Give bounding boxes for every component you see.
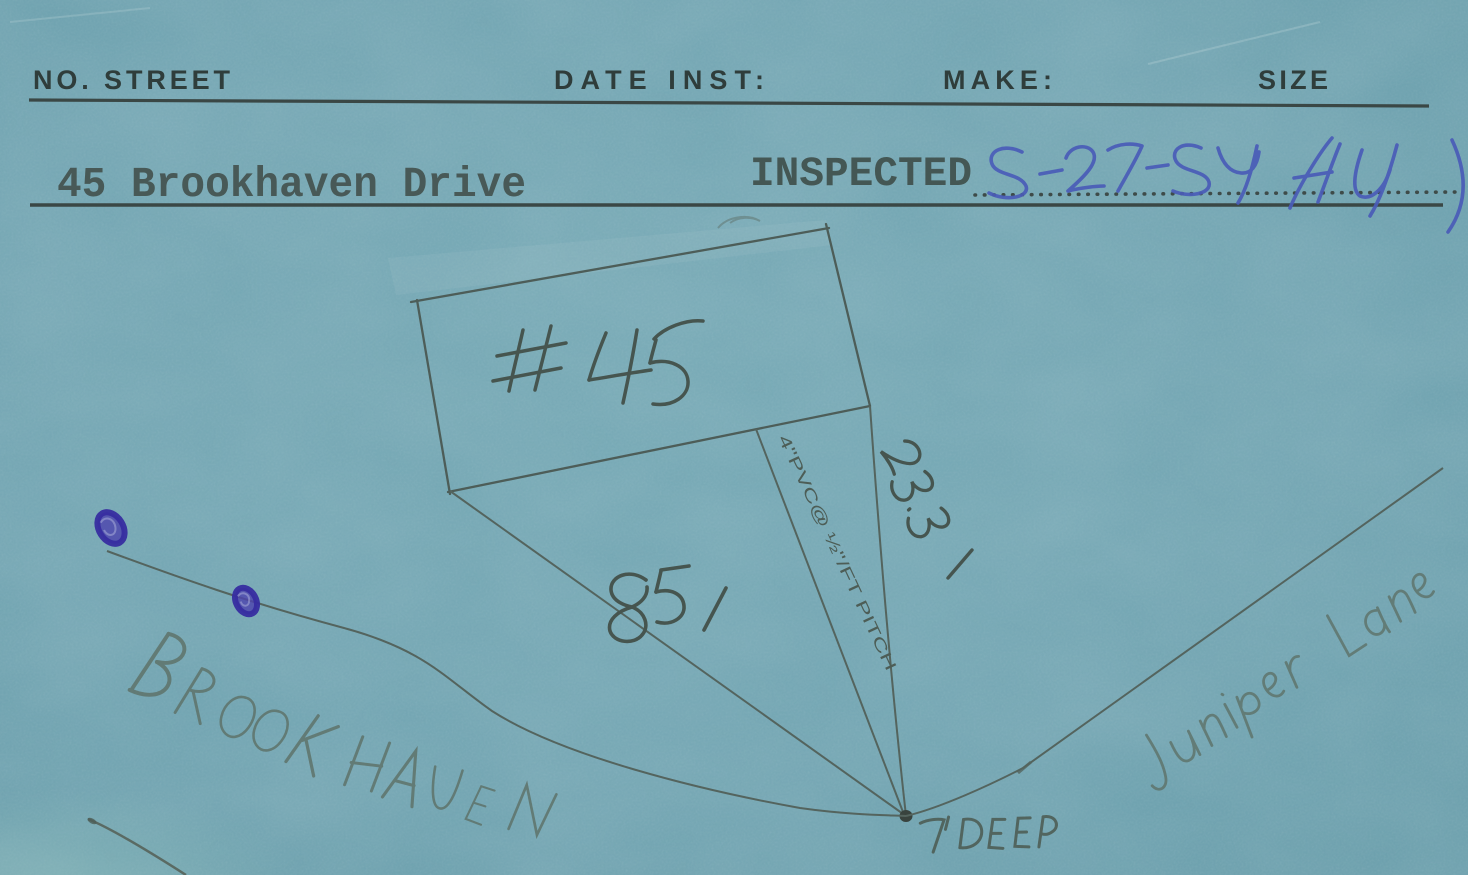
svg-text:MAKE:: MAKE:	[943, 65, 1054, 95]
svg-text:INSPECTED: INSPECTED	[750, 150, 972, 198]
svg-text:45 Brookhaven Drive: 45 Brookhaven Drive	[57, 160, 526, 209]
svg-text:SIZE: SIZE	[1258, 65, 1331, 95]
svg-text:NO. STREET: NO. STREET	[33, 65, 232, 95]
svg-text:DATE INST:: DATE INST:	[554, 65, 766, 95]
